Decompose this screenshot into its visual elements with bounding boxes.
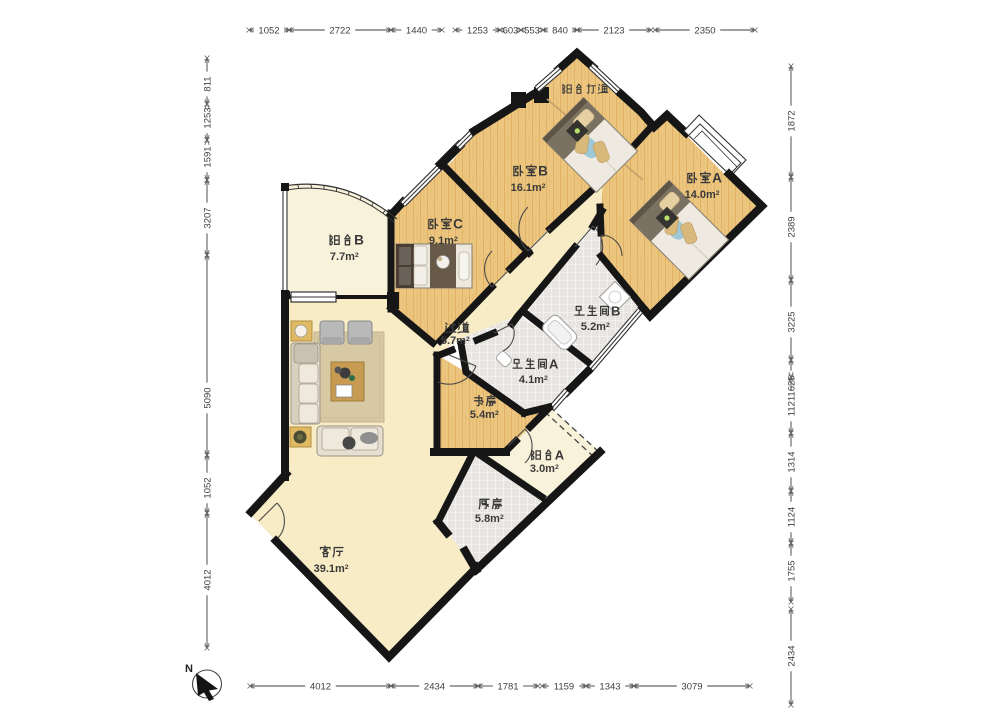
svg-text:1159: 1159	[554, 681, 574, 692]
svg-text:1781: 1781	[497, 681, 518, 692]
svg-text:603: 603	[503, 25, 519, 36]
svg-text:14.0m2: 14.0m2	[685, 189, 720, 201]
svg-text:2389: 2389	[786, 216, 797, 237]
svg-text:1052: 1052	[202, 477, 213, 498]
svg-text:1124: 1124	[786, 507, 797, 527]
svg-text:A: A	[712, 171, 722, 186]
svg-text:1872: 1872	[786, 110, 797, 131]
svg-text:N: N	[185, 663, 193, 675]
svg-text:B: B	[611, 303, 620, 318]
svg-text:1314: 1314	[786, 451, 797, 472]
svg-text:39.1m2: 39.1m2	[314, 563, 349, 575]
svg-text:C: C	[453, 217, 463, 232]
svg-text:9.1m2: 9.1m2	[429, 235, 458, 247]
svg-text:B: B	[354, 233, 364, 248]
svg-text:B: B	[538, 164, 548, 179]
svg-text:1121: 1121	[786, 396, 797, 416]
svg-text:840: 840	[552, 25, 568, 36]
svg-text:2434: 2434	[424, 681, 445, 692]
svg-text:2123: 2123	[603, 25, 624, 36]
svg-text:553: 553	[524, 25, 540, 36]
svg-text:1343: 1343	[599, 681, 620, 692]
svg-text:5.7m2: 5.7m2	[441, 335, 470, 347]
svg-text:1052: 1052	[258, 25, 279, 36]
svg-text:16.1m2: 16.1m2	[511, 182, 546, 194]
svg-text:5.8m2: 5.8m2	[475, 513, 504, 525]
svg-text:4.1m2: 4.1m2	[519, 374, 548, 386]
svg-text:4012: 4012	[310, 681, 331, 692]
svg-text:1440: 1440	[406, 25, 427, 36]
svg-text:1755: 1755	[786, 560, 797, 581]
svg-text:1591: 1591	[202, 146, 213, 167]
svg-text:3225: 3225	[786, 311, 797, 332]
svg-text:2350: 2350	[694, 25, 715, 36]
svg-text:5.2m2: 5.2m2	[581, 321, 610, 333]
svg-text:A: A	[549, 356, 559, 371]
svg-text:A: A	[555, 447, 565, 462]
svg-text:3207: 3207	[202, 207, 213, 228]
svg-text:7.7m2: 7.7m2	[330, 251, 359, 263]
svg-text:811: 811	[202, 76, 213, 91]
svg-text:4012: 4012	[202, 569, 213, 590]
svg-text:5090: 5090	[202, 387, 213, 408]
svg-text:5.4m2: 5.4m2	[470, 409, 499, 421]
svg-text:1253: 1253	[467, 25, 488, 36]
svg-text:3079: 3079	[681, 681, 702, 692]
svg-text:2722: 2722	[329, 25, 350, 36]
svg-text:2434: 2434	[786, 645, 797, 666]
svg-text:3.0m2: 3.0m2	[530, 463, 559, 475]
svg-text:1253: 1253	[202, 107, 213, 128]
